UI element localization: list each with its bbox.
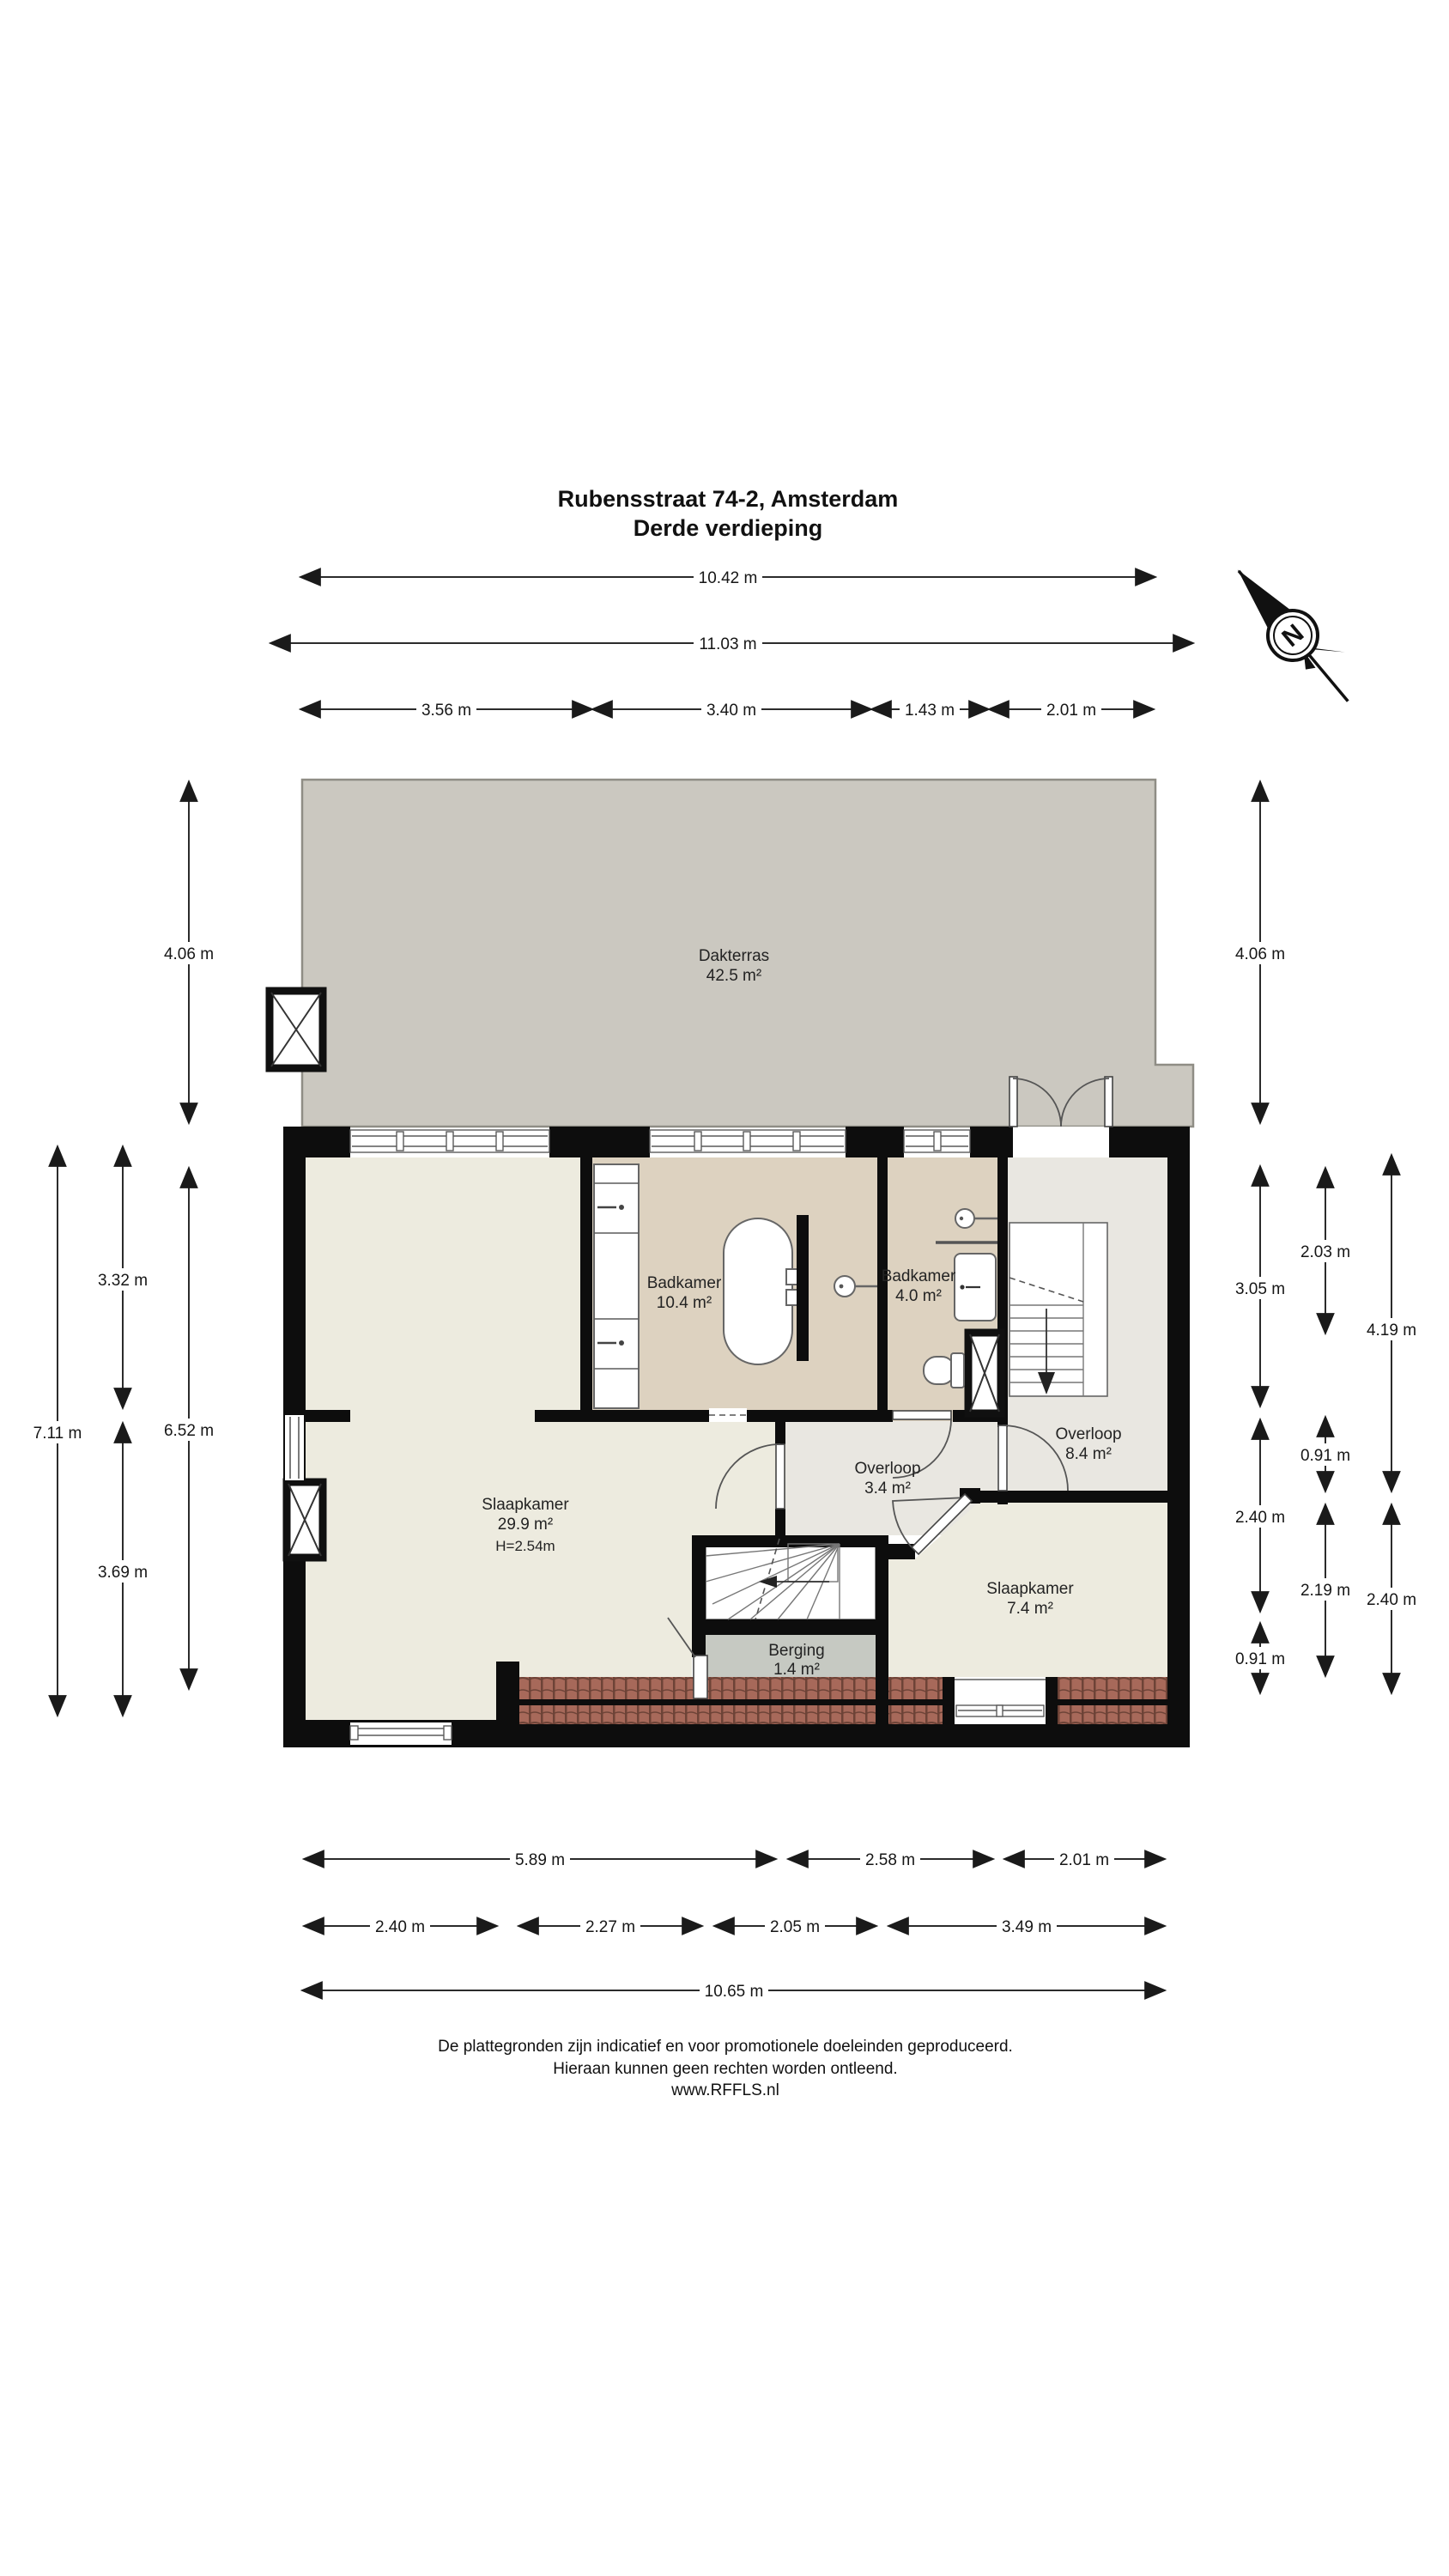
footer-line-3: www.RFFLS.nl (670, 2081, 779, 2099)
label-slaapkamer-klein-area: 7.4 m² (1007, 1600, 1053, 1618)
dim-label: 5.89 m (515, 1851, 565, 1869)
dim-label: 0.91 m (1300, 1447, 1350, 1465)
toilet (924, 1353, 964, 1388)
dim-label: 4.19 m (1367, 1321, 1416, 1340)
footer-line-2: Hieraan kunnen geen rechten worden ontle… (553, 2060, 897, 2078)
window-dormer (955, 1677, 1046, 1724)
dim-label: 2.40 m (1367, 1591, 1416, 1609)
dim-label: 3.32 m (98, 1272, 148, 1290)
label-overloop-groot-area: 8.4 m² (1065, 1445, 1112, 1463)
dim-label: 6.52 m (164, 1422, 214, 1440)
dim-label: 2.40 m (375, 1918, 425, 1936)
floorplan-page: Rubensstraat 74-2, Amsterdam Derde verdi… (0, 0, 1449, 2576)
dim-label: 3.56 m (421, 702, 471, 720)
north-compass-icon: N (1219, 551, 1371, 718)
label-badkamer-groot-area: 10.4 m² (657, 1294, 712, 1312)
footer-disclaimer: De plattegronden zijn indicatief en voor… (438, 2038, 1013, 2099)
roof-tile-strips (519, 1677, 1173, 1724)
dimensions-top: 10.42 m 11.03 m 3.56 m 3.40 m 1.43 m 2.0… (270, 566, 1193, 720)
dim-label: 4.06 m (1235, 945, 1285, 963)
dim-label: 3.49 m (1002, 1918, 1052, 1936)
label-badkamer-klein: Badkamer (882, 1267, 956, 1285)
window-facade-left (350, 1130, 549, 1152)
dimensions-left: 4.06 m 3.32 m 3.69 m 7.11 m 6.52 m (29, 781, 217, 1716)
dim-label: 3.69 m (98, 1564, 148, 1582)
dim-label: 2.05 m (770, 1918, 820, 1936)
shower-tray (955, 1254, 996, 1321)
window-left-wall (285, 1415, 304, 1480)
page-subtitle: Derde verdieping (634, 515, 823, 541)
dim-label: 7.11 m (33, 1425, 82, 1443)
window-facade-middle (650, 1130, 846, 1152)
floorplan-drawing: Rubensstraat 74-2, Amsterdam Derde verdi… (0, 0, 1449, 2576)
dim-label: 2.03 m (1300, 1243, 1350, 1261)
label-overloop-klein-area: 3.4 m² (864, 1479, 911, 1498)
bathtub (724, 1218, 798, 1364)
dim-label: 0.91 m (1235, 1650, 1285, 1668)
dimensions-right: 4.06 m 3.05 m 2.40 m 0.91 m 2.03 m 0.91 … (1232, 781, 1420, 1693)
label-berging: Berging (768, 1642, 825, 1660)
dim-label: 2.01 m (1059, 1851, 1109, 1869)
label-badkamer-klein-area: 4.0 m² (895, 1287, 942, 1305)
footer-line-1: De plattegronden zijn indicatief en voor… (438, 2038, 1013, 2056)
duct-shaft-badkamer (968, 1333, 1001, 1413)
window-bottom-left (350, 1722, 452, 1745)
dim-label: 1.43 m (905, 702, 955, 720)
wall-right (1167, 1127, 1190, 1747)
label-slaapkamer-groot: Slaapkamer (482, 1496, 569, 1514)
label-slaapkamer-klein: Slaapkamer (986, 1580, 1074, 1598)
label-overloop-klein: Overloop (854, 1460, 920, 1478)
dim-label: 2.19 m (1300, 1582, 1350, 1600)
staircase-main (1009, 1223, 1107, 1396)
label-dakterras: Dakterras (699, 947, 769, 965)
label-badkamer-groot: Badkamer (647, 1274, 722, 1292)
label-overloop-groot: Overloop (1055, 1425, 1121, 1443)
label-slaapkamer-groot-height: H=2.54m (495, 1538, 555, 1554)
dim-label: 4.06 m (164, 945, 214, 963)
duct-shaft-left-wall (287, 1482, 323, 1558)
dim-label: 10.65 m (705, 1983, 764, 2001)
label-dakterras-area: 42.5 m² (706, 967, 761, 985)
shower-screen (797, 1215, 809, 1361)
opening-badkamer-dashed (709, 1408, 747, 1422)
dim-label: 11.03 m (699, 635, 756, 653)
dim-label: 10.42 m (699, 569, 758, 587)
skylight-shaft (270, 991, 323, 1068)
dim-label: 2.58 m (865, 1851, 915, 1869)
dim-label: 3.05 m (1235, 1280, 1285, 1298)
dim-label: 3.40 m (706, 702, 756, 720)
label-berging-area: 1.4 m² (773, 1661, 820, 1679)
dim-label: 2.01 m (1046, 702, 1096, 720)
page-title: Rubensstraat 74-2, Amsterdam (558, 486, 899, 512)
window-facade-right (904, 1130, 970, 1152)
dimensions-bottom: 5.89 m 2.58 m 2.01 m 2.40 m 2.27 m 2.05 … (302, 1848, 1165, 2002)
dim-label: 2.27 m (585, 1918, 635, 1936)
staircase-berging (706, 1537, 876, 1619)
label-slaapkamer-groot-area: 29.9 m² (498, 1516, 553, 1534)
washbasin-cabinet (594, 1164, 639, 1408)
dim-label: 2.40 m (1235, 1509, 1285, 1527)
